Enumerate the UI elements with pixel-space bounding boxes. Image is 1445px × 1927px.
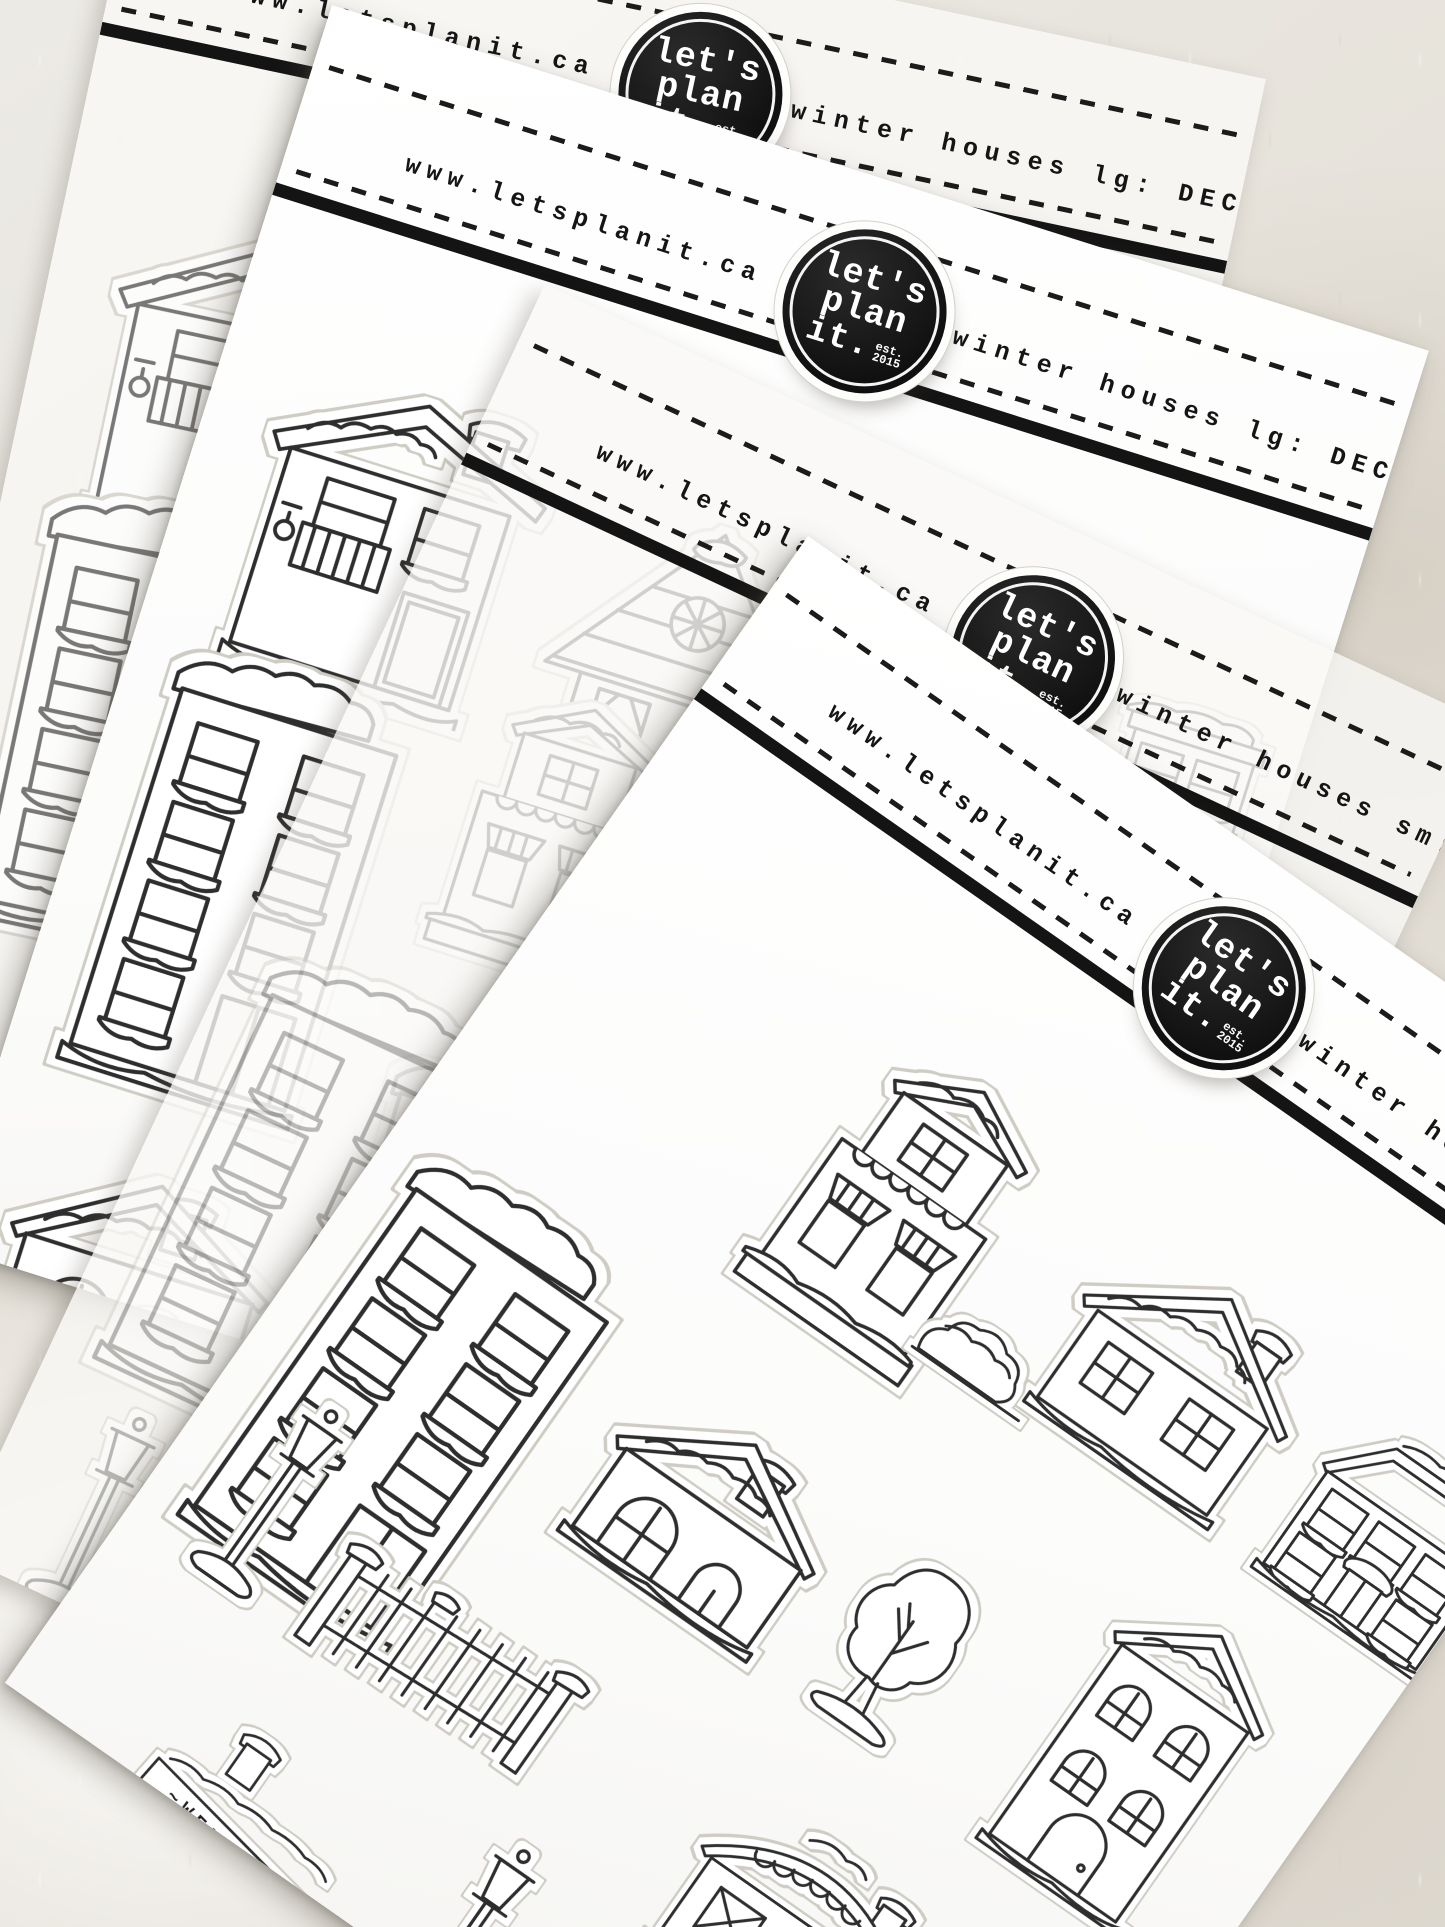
badge-word: plan xyxy=(1178,950,1269,1028)
product-photo: www.letsplanit.ca winter houses lg: DECO… xyxy=(0,0,1445,1927)
badge-word: let's xyxy=(817,248,932,313)
badge-word: it. xyxy=(802,312,875,363)
badge-word: let's xyxy=(1188,916,1297,1006)
badge-word: let's xyxy=(990,589,1104,665)
badge-year: 2015 xyxy=(871,352,902,371)
badge-word: let's xyxy=(650,34,764,89)
welcome-sign-text: ~WELCOME~ xyxy=(160,1786,290,1918)
stone-cottage-sticker xyxy=(613,1753,971,1927)
badge-word: it. xyxy=(1154,973,1227,1038)
badge-est: est. xyxy=(874,341,905,360)
badge-word: plan xyxy=(818,282,912,340)
badge-year: 2015 xyxy=(1214,1029,1244,1055)
badge-est: est. xyxy=(1221,1020,1251,1046)
